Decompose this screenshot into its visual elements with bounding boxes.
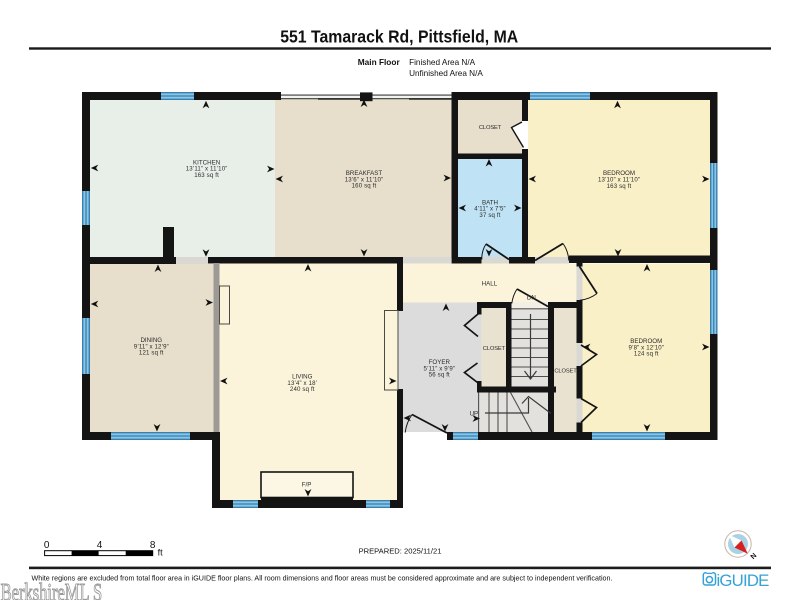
- svg-text:DN: DN: [527, 295, 536, 302]
- svg-text:121 sq ft: 121 sq ft: [139, 350, 164, 357]
- svg-text:CLOSET: CLOSET: [554, 369, 577, 375]
- svg-text:4: 4: [97, 540, 103, 551]
- svg-text:163 sq ft: 163 sq ft: [607, 183, 632, 190]
- svg-text:0: 0: [44, 540, 50, 551]
- svg-text:160 sq ft: 160 sq ft: [352, 183, 377, 190]
- svg-text:CLOSET: CLOSET: [479, 125, 502, 131]
- svg-text:124 sq ft: 124 sq ft: [634, 351, 659, 358]
- svg-text:Main Floor: Main Floor: [358, 57, 401, 67]
- svg-text:CLOSET: CLOSET: [483, 346, 506, 352]
- svg-text:8: 8: [150, 540, 156, 551]
- svg-text:White regions are excluded fro: White regions are excluded from total fl…: [32, 573, 613, 582]
- svg-text:163 sq ft: 163 sq ft: [194, 172, 219, 179]
- svg-text:HALL: HALL: [482, 280, 498, 287]
- svg-text:F/P: F/P: [302, 481, 312, 488]
- svg-text:UP: UP: [470, 411, 479, 418]
- svg-text:240 sq ft: 240 sq ft: [290, 386, 315, 393]
- svg-text:iGUIDE: iGUIDE: [717, 571, 770, 590]
- svg-text:Unfinished Area N/A: Unfinished Area N/A: [409, 69, 483, 78]
- svg-text:551 Tamarack Rd, Pittsfield, M: 551 Tamarack Rd, Pittsfield, MA: [280, 27, 518, 47]
- svg-text:BerkshireML S: BerkshireML S: [1, 578, 103, 600]
- svg-text:56 sq ft: 56 sq ft: [429, 372, 450, 379]
- svg-text:37 sq ft: 37 sq ft: [479, 212, 500, 219]
- svg-text:Finished Area N/A: Finished Area N/A: [409, 58, 476, 67]
- svg-text:PREPARED: 2025/11/21: PREPARED: 2025/11/21: [359, 546, 442, 555]
- svg-text:ft: ft: [158, 548, 164, 558]
